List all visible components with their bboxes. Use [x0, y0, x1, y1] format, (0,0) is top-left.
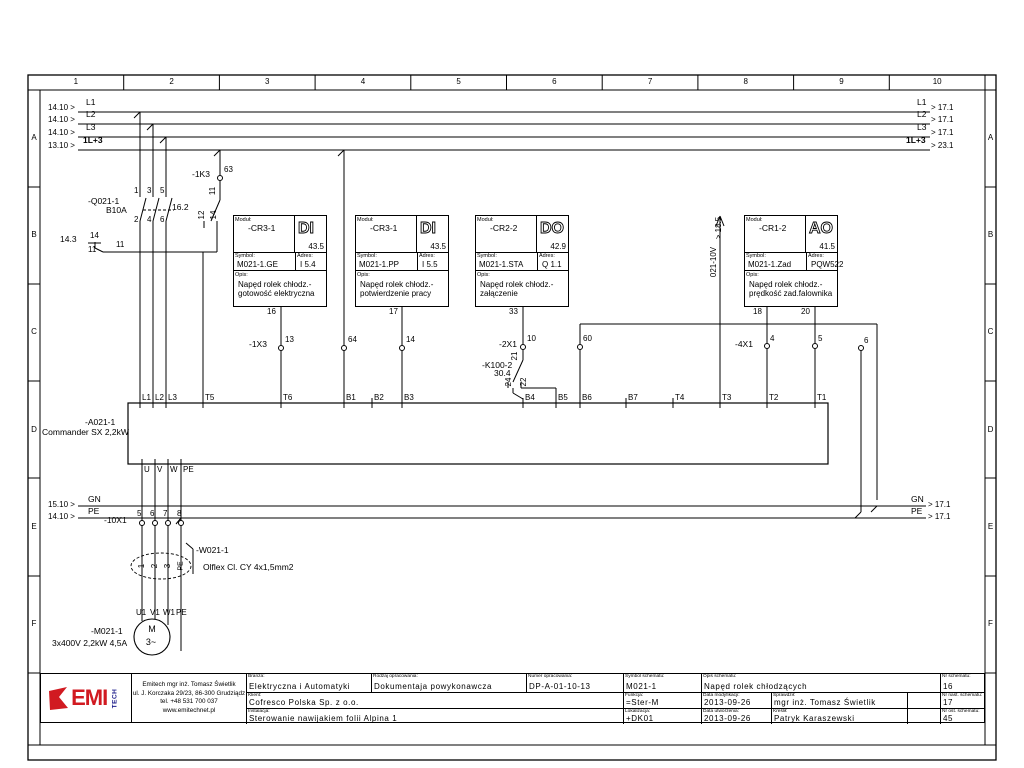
field-label: Opis schematu:: [703, 674, 736, 679]
device-tag: -4X1: [735, 340, 753, 349]
connector-pin: [166, 521, 171, 526]
wire: [871, 506, 877, 512]
terminal-number: 4: [770, 335, 774, 343]
terminal-number: 22: [520, 378, 528, 387]
module-symbol: M021-1.PP: [359, 260, 399, 269]
grid-column-number: 7: [648, 78, 652, 86]
cable-core: PE: [178, 561, 185, 570]
module-description-text: Napęd rolek chłodz.-załączenie: [480, 280, 553, 298]
field-label: Symbol schematu:: [625, 674, 664, 679]
company-info-line: Emitech mgr inż. Tomasz Świetlik: [142, 681, 235, 690]
module-symbol-row: Symbol:M021-1.ZadAdres:PQW522: [745, 253, 837, 271]
field-value: M021-1: [626, 682, 657, 691]
module-header: Moduł:-CR1-2AO41.5: [745, 216, 837, 253]
device-tag: -W021-1: [196, 546, 229, 555]
drive-terminal: T3: [722, 394, 731, 402]
device-tag: -1K3: [192, 170, 210, 179]
terminal-number: 6: [864, 337, 868, 345]
grid-row-letter: A: [988, 134, 993, 142]
connector-pin: [521, 345, 526, 350]
title-field-rodzaj-opracowania: Rodzaj opracowania:Dokumentaja powykonaw…: [371, 674, 526, 692]
drive-terminal: PE: [183, 466, 194, 474]
module-description: Opis:Napęd rolek chłodz.-załączenie: [476, 271, 568, 308]
module-type-cell: AO41.5: [805, 216, 837, 252]
description-line: załączenie: [480, 289, 553, 298]
wire-number: 18: [753, 308, 762, 316]
device-rating: B10A: [106, 206, 127, 215]
module-address: Q 1.1: [542, 260, 562, 269]
module-field-label: Opis:: [235, 272, 248, 278]
io-type-glyph: AO: [807, 216, 837, 240]
logo-emi-text: EMI: [71, 685, 107, 711]
company-logo: EMITECH: [41, 674, 131, 722]
description-line: Napęd rolek chłodz.-: [749, 280, 832, 289]
module-header: Moduł:-CR3-1DI43.5: [356, 216, 448, 253]
module-description: Opis:Napęd rolek chłodz.-prędkość zad.fa…: [745, 271, 837, 308]
module-type-cell: DI43.5: [416, 216, 448, 252]
wire: [134, 112, 140, 118]
field-value: DP-A-01-10-13: [529, 682, 591, 691]
rail-label: GN: [911, 495, 924, 504]
module-field-label: Opis:: [357, 272, 370, 278]
drive-terminal: U: [144, 466, 150, 474]
wire-number: 33: [509, 308, 518, 316]
grid-row-letter: B: [988, 231, 993, 239]
module-description-text: Napęd rolek chłodz.-prędkość zad.falowni…: [749, 280, 832, 298]
grid-row-letter: D: [31, 426, 37, 434]
svg-text:DO: DO: [540, 220, 564, 237]
module-sheet-ref: 43.5: [308, 242, 324, 251]
drive-terminal: B6: [582, 394, 592, 402]
field-value: Sterowanie nawijakiem folii Alpina 1: [249, 714, 397, 723]
field-value: Cofresco Polska Sp. z o.o.: [249, 698, 359, 707]
rail-label: L2: [917, 110, 926, 119]
connector-pin: [765, 344, 770, 349]
sheet-ref: 14.3: [60, 235, 77, 244]
module-type-cell: DO42.9: [536, 216, 568, 252]
module-sheet-ref: 42.9: [550, 242, 566, 251]
field-value: 2013-09-26: [704, 714, 751, 723]
terminal-number: 4: [147, 216, 151, 224]
terminal-number: 60: [583, 335, 592, 343]
grid-column-number: 6: [552, 78, 556, 86]
title-field-lokalizacja: Lokalizacja:+DK01: [623, 708, 701, 724]
grid-column-number: 4: [361, 78, 365, 86]
rail-label: 1L+3: [83, 136, 103, 145]
drive-terminal: B5: [558, 394, 568, 402]
motor-symbol: M: [148, 625, 156, 634]
grid-column-number: 8: [744, 78, 748, 86]
field-value: 2013-09-26: [704, 698, 751, 707]
title-field-funkcja: Funkcja:=Ster-M: [623, 692, 701, 708]
terminal-number: 64: [348, 336, 357, 344]
io-module-di: Moduł:-CR3-1DI43.5Symbol:M021-1.GEAdres:…: [233, 215, 327, 307]
wire: [513, 393, 523, 399]
sheet-ref: 13.10 >: [48, 142, 75, 150]
terminal-number: 5: [818, 335, 822, 343]
device-tag: -A021-1: [85, 418, 115, 427]
logo-tech-text: TECH: [112, 688, 119, 708]
motor-terminal: U1: [136, 609, 146, 617]
sheet-ref: > 17.1: [931, 116, 953, 124]
module-field-label: Opis:: [477, 272, 490, 278]
field-value: +DK01: [626, 714, 654, 723]
motor-terminal: PE: [176, 609, 187, 617]
title-block: EMITECHEmitech mgr inż. Tomasz Świetliku…: [40, 673, 985, 723]
field-value: Elektryczna i Automatyki: [249, 682, 350, 691]
rail-label: L1: [917, 98, 926, 107]
grid-row-letter: E: [988, 523, 993, 531]
device-tag: -10X1: [104, 516, 127, 525]
wire: [338, 150, 344, 156]
cable-core: 2: [151, 564, 159, 568]
terminal-number: 11: [209, 187, 217, 195]
svg-text:AO: AO: [809, 220, 833, 237]
drive-terminal: L2: [155, 394, 164, 402]
module-field-label: Adres:: [419, 253, 435, 259]
description-line: potwierdzenie pracy: [360, 289, 433, 298]
io-type-glyph: DO: [538, 216, 568, 240]
module-field-label: Adres:: [297, 253, 313, 259]
title-field-opis-schematu: Opis schematu:Napęd rolek chłodzących: [701, 674, 940, 692]
title-field-nr-schematu: Nr schematu:16: [940, 674, 985, 692]
grid-row-letter: C: [31, 328, 37, 336]
drive-terminal: V: [157, 466, 162, 474]
title-field-symbol-schematu: Symbol schematu:M021-1: [623, 674, 701, 692]
terminal-number: 11: [116, 241, 124, 249]
module-tag: -CR3-1: [248, 223, 275, 233]
drive-terminal: B7: [628, 394, 638, 402]
field-value: Dokumentaja powykonawcza: [374, 682, 492, 691]
wire-number: 20: [801, 308, 810, 316]
field-label: Branża:: [248, 674, 265, 679]
drive-terminal: T1: [817, 394, 826, 402]
drive-terminal: W: [170, 466, 178, 474]
module-tag: -CR1-2: [759, 223, 786, 233]
drive-terminal: T6: [283, 394, 292, 402]
field-value: =Ster-M: [626, 698, 659, 707]
grid-row-letter: F: [988, 620, 993, 628]
module-address: PQW522: [811, 260, 843, 269]
motor-terminal: W1: [163, 609, 175, 617]
module-field-label: Adres:: [808, 253, 824, 259]
module-tag: -CR3-1: [370, 223, 397, 233]
connector-pin: [218, 176, 223, 181]
title-field-instalacja: Instalacja:Sterowanie nawijakiem folii A…: [246, 708, 623, 724]
rail-label: L3: [86, 123, 95, 132]
grid-row-letter: F: [32, 620, 37, 628]
signal-name: 021-10V: [710, 247, 718, 277]
terminal-number: 3: [147, 187, 151, 195]
sheet-ref: > 17.1: [931, 104, 953, 112]
connector-pin: [578, 345, 583, 350]
description-line: Napęd rolek chłodz.-: [360, 280, 433, 289]
connector-pin: [140, 521, 145, 526]
schematic-page: 14.10 >L114.10 >L214.10 >L313.10 >1L+3L1…: [0, 0, 1024, 768]
io-module-ao: Moduł:-CR1-2AO41.5Symbol:M021-1.ZadAdres…: [744, 215, 838, 307]
connector-pin: [813, 344, 818, 349]
connector-pin: [279, 346, 284, 351]
title-field-kreślił: Kreślił:Patryk Karaszewski: [771, 708, 907, 724]
rail-label: PE: [88, 507, 99, 516]
grid-row-letter: B: [31, 231, 36, 239]
device-rating: 3x400V 2,2kW 4,5A: [52, 639, 127, 648]
module-field-label: Symbol:: [746, 253, 766, 259]
sheet-ref: > 17.1: [928, 513, 950, 521]
field-label: Nr schematu:: [942, 674, 971, 679]
title-field-numer-opracowania: Numer opracowania:DP-A-01-10-13: [526, 674, 623, 692]
module-description-text: Napęd rolek chłodz.-gotowość elektryczna: [238, 280, 314, 298]
terminal-number: 63: [224, 166, 233, 174]
field-label: Rodzaj opracowania:: [373, 674, 418, 679]
module-symbol-row: Symbol:M021-1.GEAdres:I 5.4: [234, 253, 326, 271]
connector-pin: [400, 346, 405, 351]
module-address: I 5.4: [300, 260, 316, 269]
io-type-glyph: DI: [296, 216, 326, 240]
wire: [855, 512, 861, 518]
module-sheet-ref: 41.5: [819, 242, 835, 251]
terminal-number: 10: [527, 335, 536, 343]
terminal-number: 14: [210, 211, 218, 220]
module-description: Opis:Napęd rolek chłodz.-potwierdzenie p…: [356, 271, 448, 308]
cable-core: 3: [164, 564, 172, 568]
drive-terminal: L3: [168, 394, 177, 402]
grid-column-number: 5: [456, 78, 460, 86]
module-symbol: M021-1.STA: [479, 260, 523, 269]
drive-terminal: L1: [142, 394, 151, 402]
grid-column-number: 3: [265, 78, 269, 86]
sheet-ref: 14.10 >: [48, 116, 75, 124]
io-module-do: Moduł:-CR2-2DO42.9Symbol:M021-1.STAAdres…: [475, 215, 569, 307]
connector-pin: [179, 521, 184, 526]
device-tag: -M021-1: [91, 627, 123, 636]
module-field-label: Symbol:: [235, 253, 255, 259]
sheet-ref: > 17.1: [931, 129, 953, 137]
terminal-number: 24: [505, 378, 513, 387]
grid-column-number: 2: [169, 78, 173, 86]
field-value: mgr inż. Tomasz Świetlik: [774, 698, 876, 707]
title-field-nr-nast-schematu: Nr nast. schematu:17: [940, 692, 985, 708]
module-sheet-ref: 43.5: [430, 242, 446, 251]
terminal-number: 7: [163, 510, 167, 518]
device-tag: -1X3: [249, 340, 267, 349]
terminal-number: 8: [177, 510, 181, 518]
cable-spec: Olflex Cl. CY 4x1,5mm2: [203, 563, 294, 572]
module-symbol-row: Symbol:M021-1.PPAdres:I 5.5: [356, 253, 448, 271]
grid-row-letter: A: [31, 134, 36, 142]
terminal-number: 14: [406, 336, 415, 344]
description-line: gotowość elektryczna: [238, 289, 314, 298]
module-field-label: Symbol:: [477, 253, 497, 259]
sheet-ref: > 18.5: [715, 217, 723, 239]
wire: [147, 124, 153, 130]
description-line: Napęd rolek chłodz.-: [480, 280, 553, 289]
drive-terminal: B1: [346, 394, 356, 402]
title-field-empty: [907, 708, 940, 724]
motor-terminal: V1: [150, 609, 160, 617]
grid-row-letter: C: [988, 328, 994, 336]
drive-box: [128, 403, 828, 464]
terminal-number: 6: [160, 216, 164, 224]
wire-number: 16: [267, 308, 276, 316]
svg-text:DI: DI: [420, 220, 436, 237]
rail-label: L2: [86, 110, 95, 119]
module-adres-cell: Adres:Q 1.1: [537, 253, 570, 270]
module-header: Moduł:-CR2-2DO42.9: [476, 216, 568, 253]
sheet-ref: 16.2: [172, 203, 189, 212]
terminal-number: 14: [90, 232, 99, 240]
sheet-ref: > 23.1: [931, 142, 953, 150]
terminal-number: 1: [134, 187, 138, 195]
device-tag: -2X1: [499, 340, 517, 349]
io-module-di: Moduł:-CR3-1DI43.5Symbol:M021-1.PPAdres:…: [355, 215, 449, 307]
rail-label: L1: [86, 98, 95, 107]
rail-label: GN: [88, 495, 101, 504]
title-field-nr-ost-schematu: Nr ost. schematu:45: [940, 708, 985, 724]
sheet-ref: > 17.1: [928, 501, 950, 509]
module-description-text: Napęd rolek chłodz.-potwierdzenie pracy: [360, 280, 433, 298]
terminal-number: 21: [511, 352, 519, 361]
drive-terminal: B3: [404, 394, 414, 402]
description-line: Napęd rolek chłodz.-: [238, 280, 314, 289]
terminal-number: 11: [88, 246, 96, 254]
sheet-ref: 14.10 >: [48, 104, 75, 112]
terminal-number: 5: [137, 510, 141, 518]
grid-row-letter: E: [31, 523, 36, 531]
field-value: Patryk Karaszewski: [774, 714, 855, 723]
drive-terminal: B4: [525, 394, 535, 402]
terminal-number: 13: [285, 336, 294, 344]
title-field-sprawdził: Sprawdził:mgr inż. Tomasz Świetlik: [771, 692, 907, 708]
drive-terminal: T4: [675, 394, 684, 402]
title-field-branża: Branża:Elektryczna i Automatyki: [246, 674, 371, 692]
terminal-number: 2: [134, 216, 138, 224]
module-header: Moduł:-CR3-1DI43.5: [234, 216, 326, 253]
logo-mark-icon: [47, 685, 71, 711]
module-field-label: Adres:: [539, 253, 555, 259]
field-value: Napęd rolek chłodzących: [704, 682, 807, 691]
wire: [160, 137, 166, 143]
company-info: Emitech mgr inż. Tomasz Świetlikul. J. K…: [131, 674, 246, 722]
sheet-ref: 15.10 >: [48, 501, 75, 509]
title-field-klient: Klient:Cofresco Polska Sp. z o.o.: [246, 692, 623, 708]
module-description: Opis:Napęd rolek chłodz.-gotowość elektr…: [234, 271, 326, 308]
wire: [214, 150, 220, 156]
title-field-data-utworzenia: Data utworzenia:2013-09-26: [701, 708, 771, 724]
module-address: I 5.5: [422, 260, 438, 269]
field-value: 16: [943, 682, 953, 691]
title-field-data-modyfikacji: Data modyfikacji:2013-09-26: [701, 692, 771, 708]
wire-number: 17: [389, 308, 398, 316]
module-adres-cell: Adres:I 5.4: [295, 253, 328, 270]
outer-border: [28, 75, 996, 760]
cable-core: 1: [138, 564, 146, 568]
grid-column-number: 10: [933, 78, 942, 86]
grid-column-number: 9: [839, 78, 843, 86]
description-line: prędkość zad.falownika: [749, 289, 832, 298]
wire: [186, 543, 193, 549]
module-adres-cell: Adres:I 5.5: [417, 253, 450, 270]
svg-text:DI: DI: [298, 220, 314, 237]
connector-pin: [859, 346, 864, 351]
grid-column-number: 1: [74, 78, 78, 86]
terminal-number: 6: [150, 510, 154, 518]
drive-terminal: B2: [374, 394, 384, 402]
terminal-number: 5: [160, 187, 164, 195]
rail-label: 1L+3: [906, 136, 926, 145]
company-info-line: www.emitechnet.pl: [163, 707, 216, 716]
company-info-line: ul. J. Korczaka 29/23, 86-300 Grudziądz: [133, 690, 245, 699]
connector-pin: [342, 346, 347, 351]
module-symbol-row: Symbol:M021-1.STAAdres:Q 1.1: [476, 253, 568, 271]
grid-row-letter: D: [988, 426, 994, 434]
rail-label: PE: [911, 507, 922, 516]
field-label: Numer opracowania:: [528, 674, 572, 679]
module-field-label: Symbol:: [357, 253, 377, 259]
module-symbol: M021-1.Zad: [748, 260, 791, 269]
drive-terminal: T2: [769, 394, 778, 402]
module-adres-cell: Adres:PQW522: [806, 253, 839, 270]
device-desc: Commander SX 2,2kW: [42, 428, 129, 437]
sheet-ref: 14.10 >: [48, 129, 75, 137]
sheet-ref: 14.10 >: [48, 513, 75, 521]
field-value: 45: [943, 714, 953, 723]
module-tag: -CR2-2: [490, 223, 517, 233]
company-info-line: tel. +48 531 700 037: [160, 698, 218, 707]
drive-terminal: T5: [205, 394, 214, 402]
module-field-label: Opis:: [746, 272, 759, 278]
title-field-empty: [907, 692, 940, 708]
module-type-cell: DI43.5: [294, 216, 326, 252]
module-symbol: M021-1.GE: [237, 260, 278, 269]
motor-symbol: 3~: [146, 638, 156, 647]
terminal-number: 12: [198, 211, 206, 220]
field-value: 17: [943, 698, 953, 707]
io-type-glyph: DI: [418, 216, 448, 240]
connector-pin: [153, 521, 158, 526]
rail-label: L3: [917, 123, 926, 132]
